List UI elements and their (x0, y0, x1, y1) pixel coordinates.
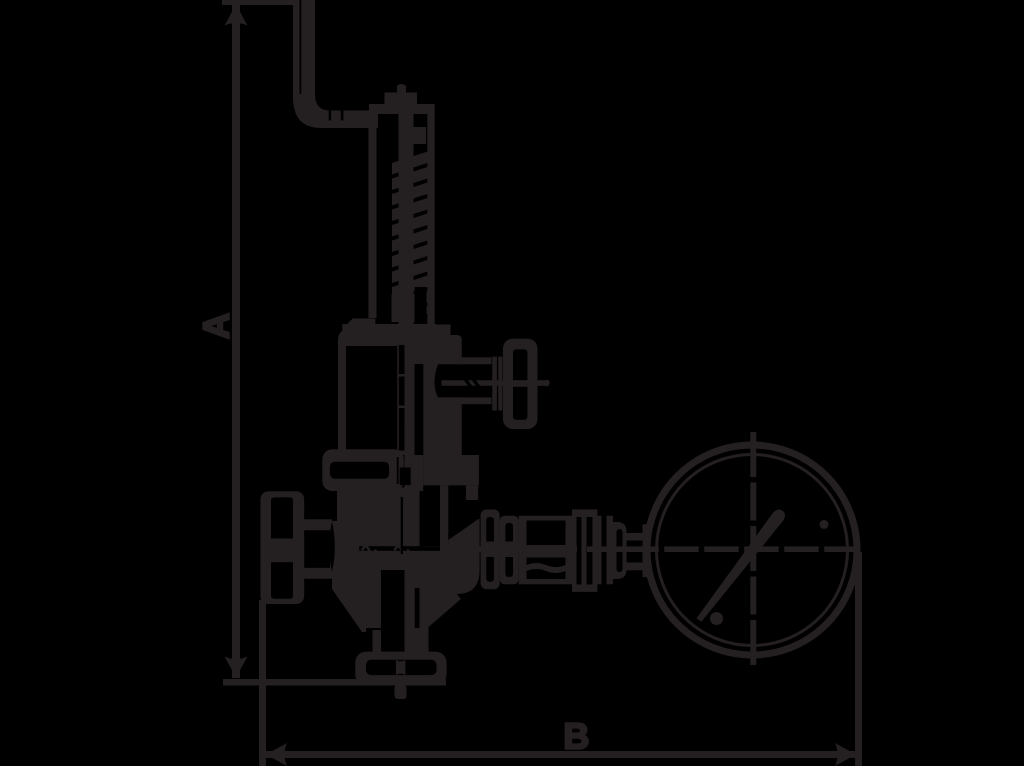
svg-text:B: B (563, 716, 589, 757)
svg-text:A: A (196, 313, 237, 339)
